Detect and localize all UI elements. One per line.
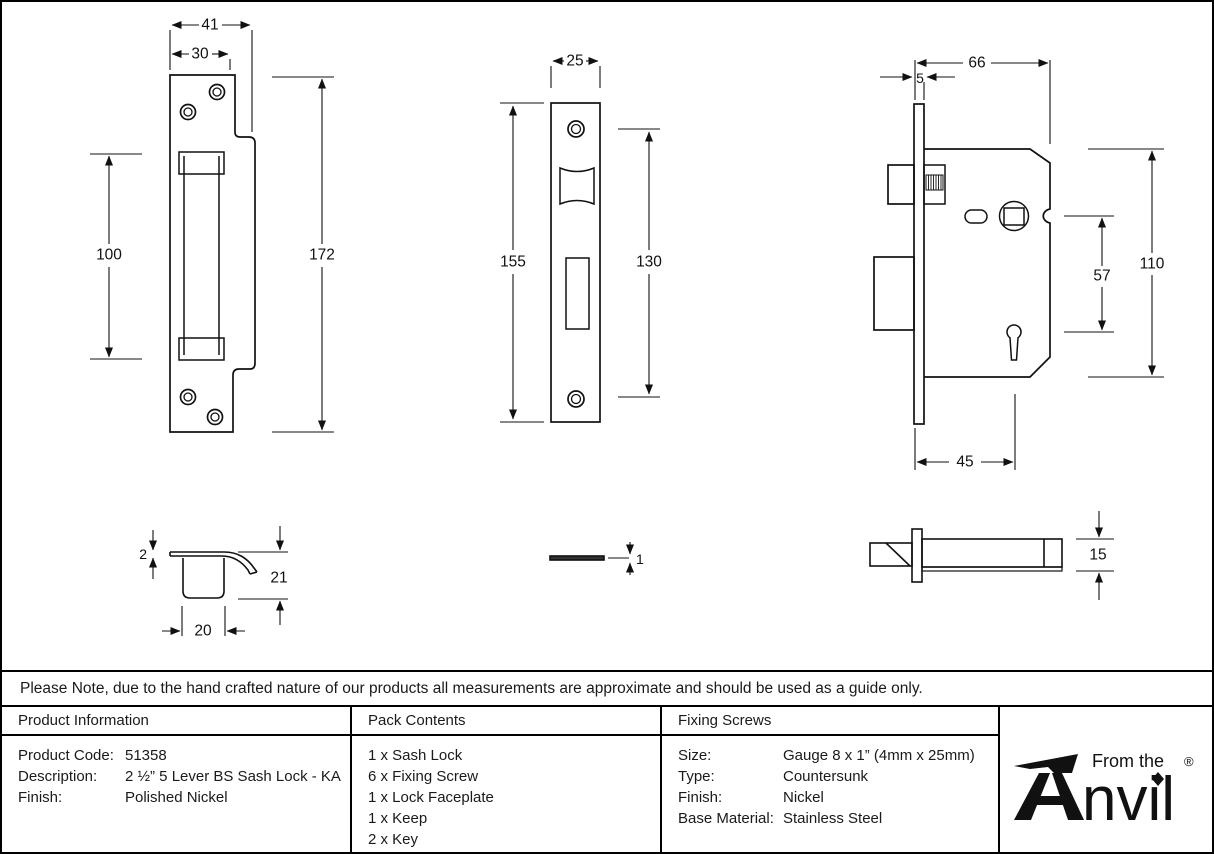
logo-wordmark: nvil [1082,765,1175,834]
dim-keep-pocket-height: 100 [96,247,122,264]
dim-lock-spindle-to-keyhole: 57 [1093,268,1110,285]
screw-hole [568,391,584,407]
fixing-screws-row: Finish: Nickel [678,787,994,808]
case-base-strip [922,567,1062,571]
keep-profile-view [170,552,257,598]
keep-outline [170,75,255,432]
bolt-opening [566,258,589,329]
pack-item: 1 x Keep [368,808,656,829]
keep-front-view [170,75,255,432]
faceplate-profile-view [550,556,604,560]
product-info-row: Description: 2 ½” 5 Lever BS Sash Lock -… [18,766,346,787]
faceplate-profile-bar [550,556,604,560]
faceplate-profile-dimensions [608,542,630,575]
header-label: Product Information [18,712,149,729]
latch-follower [924,165,945,204]
product-info-table: Product Information Pack Contents Fixing… [2,707,1212,852]
logo-registered-mark: ® [1184,754,1194,769]
keep-pocket [179,152,224,360]
fixing-screws-row: Size: Gauge 8 x 1” (4mm x 25mm) [678,745,994,766]
screw-hole [568,121,584,137]
field-label: Description: [18,766,125,787]
screw-hole [181,390,196,405]
lock-body-dimensions [880,60,1164,470]
pack-contents-body: 1 x Sash Lock 6 x Fixing Screw 1 x Lock … [352,736,662,852]
fixing-screws-row: Type: Countersunk [678,766,994,787]
fixing-screws-row: Base Material: Stainless Steel [678,808,994,829]
product-info-row: Product Code: 51358 [18,745,346,766]
latch-bolt [888,165,914,204]
dim-keep-box-width: 20 [194,623,212,640]
deadbolt [874,257,914,330]
lock-faceplate-edge [914,104,924,424]
screw-hole [181,105,196,120]
keep-box [183,558,224,598]
lock-body-side-view [874,104,1050,424]
screw-hole [213,88,221,96]
pack-item: 6 x Fixing Screw [368,766,656,787]
field-value: Gauge 8 x 1” (4mm x 25mm) [783,745,994,766]
header-product-information: Product Information [2,707,352,736]
pack-item: 1 x Lock Faceplate [368,787,656,808]
field-value: 51358 [125,745,346,766]
field-value: Polished Nickel [125,787,346,808]
dim-faceplate-screw-spacing: 130 [636,254,662,271]
faceplate-bar [912,529,922,582]
header-label: Pack Contents [368,712,466,729]
lock-case-top [922,539,1062,567]
lock-top-view [870,529,1062,582]
fixing-screws-body: Size: Gauge 8 x 1” (4mm x 25mm) Type: Co… [662,736,1000,852]
dim-keep-slot-width: 30 [191,46,209,63]
faceplate-front-view [551,103,600,422]
field-value: 2 ½” 5 Lever BS Sash Lock - KA [125,766,346,787]
field-label: Size: [678,745,783,766]
field-label: Finish: [18,787,125,808]
screw-hole [211,413,219,421]
faceplate-outline [551,103,600,422]
measurement-note-text: Please Note, due to the hand crafted nat… [20,680,923,698]
dim-keep-plate-thickness: 2 [139,546,147,562]
dim-faceplate-thickness: 1 [636,551,644,567]
screw-hole [208,410,223,425]
product-info-row: Finish: Polished Nickel [18,787,346,808]
dim-lock-backset: 45 [956,454,973,471]
header-pack-contents: Pack Contents [352,707,662,736]
dim-keep-width: 41 [201,17,218,34]
screw-hole [572,125,581,134]
handle-hole [965,210,987,223]
dim-lock-depth: 66 [968,55,985,72]
header-label: Fixing Screws [678,712,771,729]
measurement-note-bar: Please Note, due to the hand crafted nat… [2,670,1212,707]
field-label: Finish: [678,787,783,808]
pack-item: 1 x Sash Lock [368,745,656,766]
field-label: Base Material: [678,808,783,829]
anvil-logo: From the nvil ® [1006,724,1206,836]
product-information-body: Product Code: 51358 Description: 2 ½” 5 … [2,736,352,852]
field-value: Countersunk [783,766,994,787]
dim-keep-depth: 21 [270,570,287,587]
field-value: Stainless Steel [783,808,994,829]
brand-logo-cell: From the nvil ® [1000,707,1212,852]
header-fixing-screws: Fixing Screws [662,707,1000,736]
keep-profile-dimensions [153,526,288,636]
technical-drawings: 41 30 100 172 25 155 [2,2,1212,670]
screw-hole [572,395,581,404]
dim-lock-faceplate-thickness: 5 [916,70,924,86]
dim-keep-height: 172 [309,247,335,264]
datasheet-page: 41 30 100 172 25 155 [0,0,1214,854]
dim-lock-case-thickness: 15 [1089,547,1106,564]
field-label: Product Code: [18,745,125,766]
hatch-lines [929,175,942,190]
anvil-icon [1014,754,1084,820]
faceplate-front-dimensions [500,61,660,422]
screw-hole [210,85,225,100]
field-value: Nickel [783,787,994,808]
dim-faceplate-height: 155 [500,254,526,271]
pack-item: 2 x Key [368,829,656,850]
field-label: Type: [678,766,783,787]
screw-hole [184,108,192,116]
latch-bevel [886,543,910,566]
dim-lock-height: 110 [1140,256,1165,273]
screw-hole [184,393,192,401]
dim-faceplate-width: 25 [566,53,583,70]
keyhole [1007,325,1021,360]
latch-opening [560,168,594,204]
spindle-square [1004,208,1024,225]
